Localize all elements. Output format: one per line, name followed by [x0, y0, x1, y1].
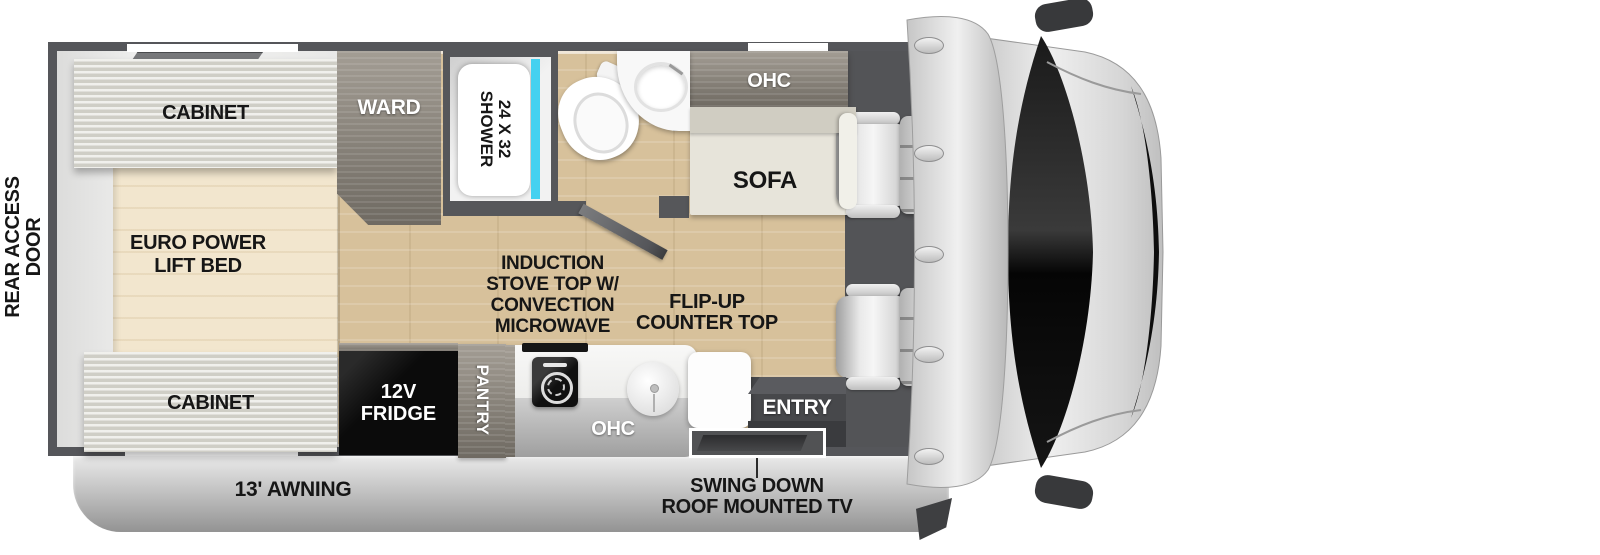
hinge-pin-icon: [914, 448, 944, 465]
awning-label: 13' AWNING: [213, 478, 373, 501]
hinge-pin-icon: [914, 37, 944, 54]
pantry-label: PANTRY: [473, 360, 491, 440]
rv-floorplan: REAR ACCESS DOOR 13' AWNING CABINET EURO…: [0, 0, 1600, 555]
side-mirror-icon: [1033, 473, 1095, 511]
tv-icon: [697, 435, 807, 451]
sofa-backrest: [690, 107, 856, 133]
entry-label: ENTRY: [748, 396, 846, 419]
stove-burner-inner-icon: [547, 378, 565, 396]
hinge-pin-icon: [914, 145, 944, 162]
overhead-cabinet-kitchen-label: OHC: [558, 418, 668, 440]
hinge-pin-icon: [914, 346, 944, 363]
euro-power-lift-bed-label: EURO POWER LIFT BED: [88, 232, 308, 278]
stove-vent-icon: [543, 363, 567, 367]
fridge: 12V FRIDGE: [339, 351, 458, 455]
fridge-label-line1: 12V: [381, 381, 417, 403]
sofa-armrest: [839, 113, 857, 209]
swing-down-tv-callout: SWING DOWN ROOF MOUNTED TV: [647, 476, 867, 518]
window: [748, 43, 828, 51]
rear-access-line1: REAR ACCESS: [3, 171, 24, 323]
wardrobe: [337, 51, 441, 225]
bathroom-wall: [659, 196, 689, 218]
side-mirror-icon: [1033, 0, 1095, 34]
hinge-pin-icon: [914, 246, 944, 263]
fridge-label-line2: FRIDGE: [361, 403, 437, 425]
rear-access-door-label: REAR ACCESS DOOR: [3, 171, 47, 323]
flip-up-counter: [688, 352, 751, 428]
overhead-cabinet-sofa-label: OHC: [690, 70, 848, 92]
rear-access-line2: DOOR: [24, 171, 45, 323]
shower-glass-door: [531, 59, 540, 199]
counter-vent-icon: [522, 343, 588, 352]
window: [127, 44, 298, 52]
kitchen-counter-edge: [505, 345, 515, 457]
wardrobe-label: WARD: [337, 96, 441, 119]
entry-step: [748, 377, 846, 394]
cabinet-bottom-label: CABINET: [84, 392, 337, 414]
sofa-label: SOFA: [690, 168, 840, 194]
flip-up-counter-callout: FLIP-UP COUNTER TOP: [617, 292, 797, 334]
cabinet-top-label: CABINET: [74, 102, 337, 124]
cab-front-illustration: [895, 0, 1180, 555]
kitchen-faucet-icon: [650, 384, 659, 393]
kitchen-faucet-handle-icon: [653, 394, 655, 412]
bathroom-wall: [443, 201, 586, 216]
shower-size-label: 24 X 32 SHOWER: [475, 69, 513, 189]
